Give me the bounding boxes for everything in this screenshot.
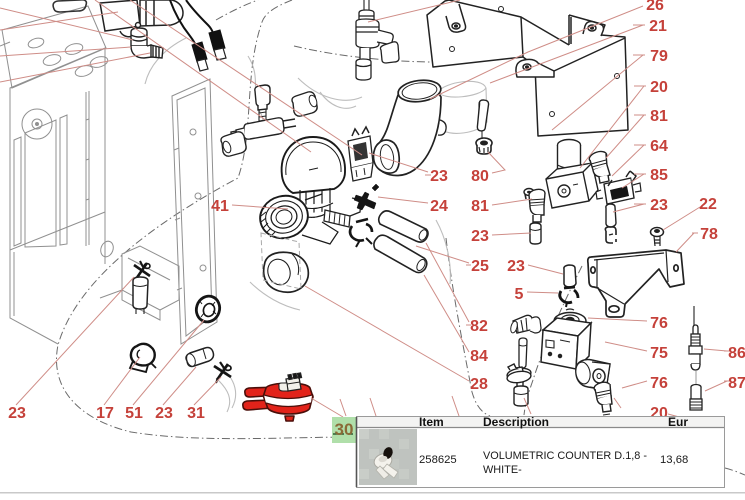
svg-text:5: 5 (515, 286, 524, 303)
svg-text:41: 41 (211, 198, 229, 215)
svg-text:23: 23 (507, 258, 525, 275)
svg-text:WHITE-: WHITE- (483, 464, 522, 476)
svg-text:76: 76 (650, 375, 668, 392)
svg-text:51: 51 (125, 405, 143, 422)
svg-text:85: 85 (650, 167, 668, 184)
svg-text:VOLUMETRIC COUNTER D.1,8 -: VOLUMETRIC COUNTER D.1,8 - (483, 450, 647, 462)
svg-text:21: 21 (649, 18, 667, 35)
svg-text:75: 75 (650, 345, 668, 362)
svg-text:64: 64 (650, 138, 668, 155)
svg-text:80: 80 (471, 168, 489, 185)
svg-text:Eur: Eur (668, 415, 688, 429)
svg-text:84: 84 (470, 348, 488, 365)
svg-text:22: 22 (699, 196, 717, 213)
svg-text:26: 26 (646, 0, 664, 14)
svg-text:86: 86 (728, 345, 745, 362)
svg-text:20: 20 (650, 79, 668, 96)
svg-text:82: 82 (470, 318, 488, 335)
svg-text:79: 79 (650, 48, 668, 65)
svg-text:30: 30 (335, 420, 354, 439)
svg-text:76: 76 (650, 315, 668, 332)
svg-text:87: 87 (728, 375, 745, 392)
svg-text:24: 24 (430, 198, 448, 215)
svg-text:Item: Item (419, 415, 444, 429)
svg-text:Description: Description (483, 415, 549, 429)
svg-text:23: 23 (471, 228, 489, 245)
svg-text:23: 23 (430, 168, 448, 185)
svg-text:81: 81 (471, 198, 489, 215)
svg-text:23: 23 (8, 405, 26, 422)
svg-text:23: 23 (650, 197, 668, 214)
svg-text:13,68: 13,68 (660, 454, 688, 466)
svg-text:23: 23 (155, 405, 173, 422)
svg-text:25: 25 (471, 258, 489, 275)
svg-text:28: 28 (470, 376, 488, 393)
svg-text:258625: 258625 (419, 454, 457, 466)
svg-text:81: 81 (650, 108, 668, 125)
svg-text:78: 78 (700, 226, 718, 243)
svg-text:31: 31 (187, 405, 205, 422)
svg-text:17: 17 (96, 405, 114, 422)
